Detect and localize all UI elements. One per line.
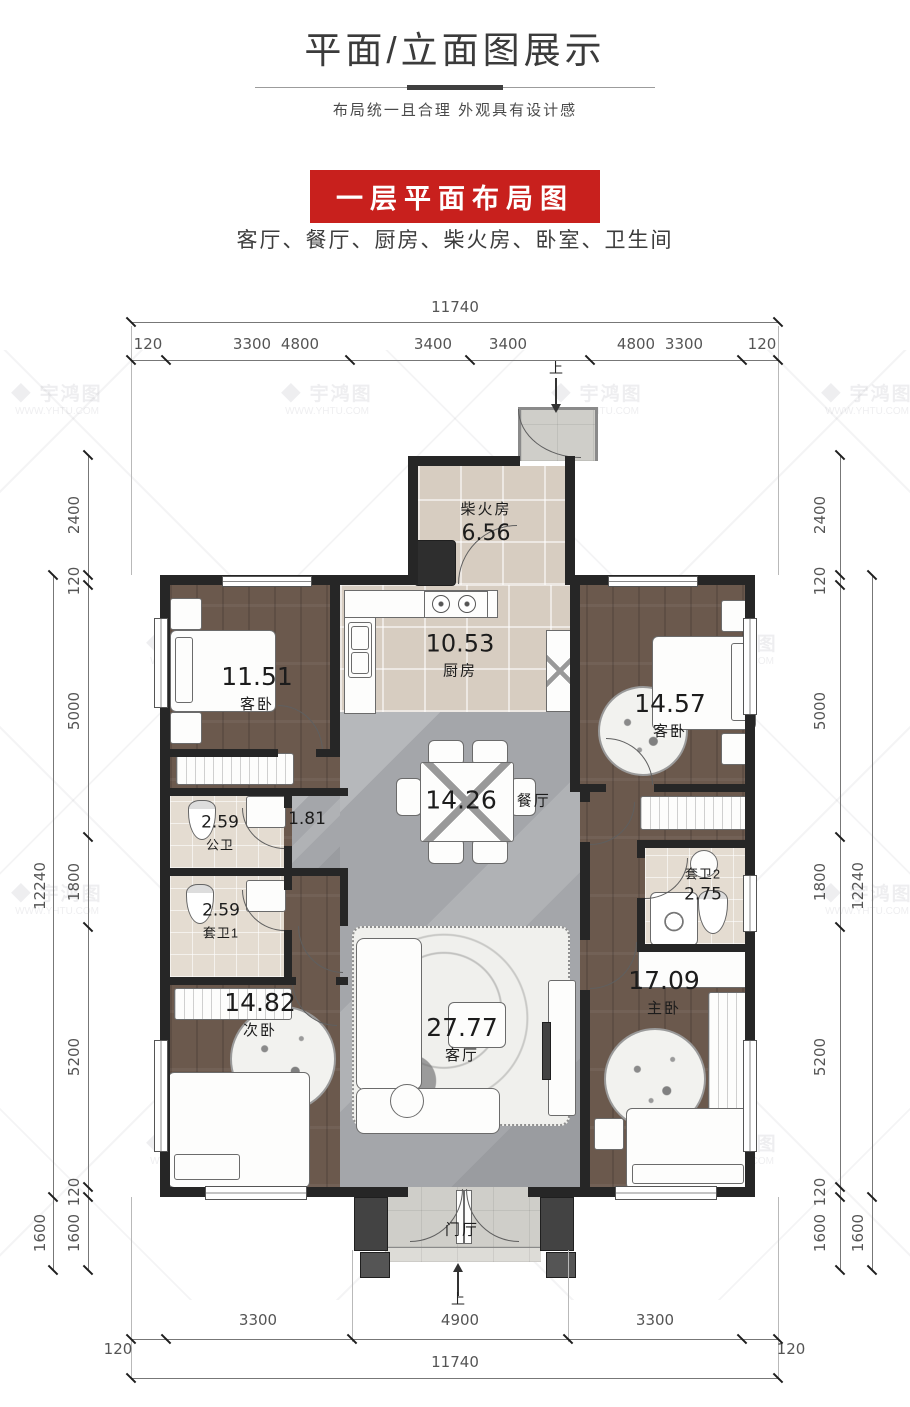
watermark-url: WWW.YHTU.COM: [281, 406, 372, 417]
arrow-head: [551, 404, 561, 413]
room-area: 2.59: [202, 901, 240, 921]
window: [608, 576, 698, 587]
window: [743, 618, 757, 715]
watermark-brand: ◆ 宇鸿图: [11, 379, 102, 406]
room-label-second-bedroom: 14.82 次卧: [224, 988, 296, 1040]
dim-label: 5200: [811, 1038, 829, 1076]
room-name: 套卫1: [203, 923, 239, 942]
wardrobe: [176, 753, 294, 785]
firewood-stove: [414, 540, 456, 586]
dim-line-bottom-chain: [131, 1339, 778, 1340]
room-label-suite-bath-1: 2.59 套卫1: [202, 901, 240, 942]
wardrobe: [640, 796, 748, 830]
watermark-url: WWW.YHTU.COM: [821, 406, 910, 417]
room-area: 14.82: [224, 988, 296, 1017]
dim-line-top-total: [131, 322, 778, 323]
dim-label: 3300: [636, 1311, 674, 1329]
room-name: 客卧: [653, 720, 687, 741]
room-label-guest-bedroom-right: 14.57 客卧: [634, 689, 706, 741]
pillow: [174, 1154, 240, 1180]
dim-label: 1600: [811, 1214, 829, 1252]
wall: [580, 990, 590, 1187]
floor-hallway: [292, 796, 340, 868]
wall: [284, 796, 292, 808]
wall: [340, 876, 348, 926]
room-area: 6.56: [462, 521, 511, 546]
room-name: 柴火房: [460, 498, 511, 519]
room-name: 套卫2: [685, 864, 721, 883]
entry-marker-top: 上: [549, 358, 563, 378]
wall: [160, 788, 348, 796]
dim-label: 1600: [849, 1214, 867, 1252]
porch-column: [540, 1197, 574, 1251]
nightstand: [170, 598, 202, 630]
entry-arrow-top: [555, 378, 557, 404]
dim-line-bottom-total: [131, 1378, 778, 1379]
sink-bowl: [351, 626, 369, 650]
wall-firewood-right: [565, 456, 575, 585]
pillow: [175, 637, 193, 703]
dim-label: 1800: [65, 863, 83, 901]
sink-bowl: [351, 652, 369, 674]
wall: [637, 898, 645, 944]
room-area: 17.09: [628, 966, 700, 995]
stove-burner: [432, 595, 450, 613]
dim-guide: [778, 326, 779, 575]
dim-label: 3300: [665, 335, 703, 353]
wall: [160, 868, 348, 876]
dim-label: 11740: [431, 1353, 479, 1371]
room-area: 2.59: [201, 813, 239, 833]
room-label-foyer: 门厅: [445, 1219, 479, 1240]
room-area: 14.57: [634, 689, 706, 718]
dining-chair: [396, 778, 422, 816]
room-area: 14.26: [425, 786, 497, 815]
wall: [637, 944, 755, 952]
dim-label: 2400: [65, 496, 83, 534]
room-label-dining: 14.26 餐厅: [425, 786, 551, 815]
window: [743, 875, 757, 932]
window: [743, 1040, 757, 1152]
dim-label: 120: [811, 1178, 829, 1207]
room-label-hallway: 1.81: [288, 809, 326, 829]
room-name: 客卧: [240, 693, 274, 714]
room-name: 主卧: [647, 997, 681, 1018]
nightstand: [170, 712, 202, 744]
dim-label: 5200: [65, 1038, 83, 1076]
room-name: 次卧: [243, 1019, 277, 1040]
wall: [580, 784, 590, 802]
sofa: [356, 938, 422, 1090]
porch-column-base: [360, 1252, 390, 1278]
watermark: ◆ 宇鸿图WWW.YHTU.COM: [281, 379, 372, 417]
window: [154, 618, 168, 708]
window: [205, 1186, 307, 1200]
dim-label: 3400: [414, 335, 452, 353]
dim-label: 120: [134, 335, 163, 353]
dim-label: 5000: [811, 692, 829, 730]
wall: [160, 749, 278, 757]
watermark-brand: ◆ 宇鸿图: [821, 379, 910, 406]
watermark-brand: ◆ 宇鸿图: [551, 379, 642, 406]
dim-line-left-outer: [53, 575, 54, 1270]
room-area: 11.51: [221, 662, 293, 691]
dim-label: 3400: [489, 335, 527, 353]
window: [615, 1186, 717, 1200]
window: [222, 576, 312, 587]
dim-label: 120: [811, 567, 829, 596]
watermark: ◆ 宇鸿图WWW.YHTU.COM: [821, 379, 910, 417]
dim-label: 4900: [441, 1311, 479, 1329]
window: [154, 1040, 168, 1152]
dim-label: 12240: [31, 862, 49, 910]
room-label-firewood: 柴火房 6.56: [460, 498, 511, 546]
dim-label: 120: [65, 567, 83, 596]
wall: [637, 848, 645, 858]
watermark-url: WWW.YHTU.COM: [11, 406, 102, 417]
room-area: 10.53: [426, 630, 495, 658]
room-label-living: 27.77 客厅: [426, 1013, 498, 1065]
porch-column: [354, 1197, 388, 1251]
dim-label: 2400: [811, 496, 829, 534]
room-area: 2.75: [684, 885, 722, 905]
pillow: [632, 1164, 744, 1184]
room-name: 餐厅: [517, 790, 551, 811]
dim-label: 120: [748, 335, 777, 353]
room-label-public-bath: 2.59 公卫: [201, 813, 239, 854]
dim-guide: [352, 1250, 353, 1342]
sofa: [356, 1088, 500, 1134]
dim-label: 11740: [431, 298, 479, 316]
stove-burner: [458, 595, 476, 613]
dim-guide: [131, 326, 132, 575]
dim-guide: [568, 1250, 569, 1342]
page: 平面/立面图展示 布局统一且合理 外观具有设计感 一层平面布局图 客厅、餐厅、厨…: [0, 0, 910, 1407]
room-area: 27.77: [426, 1013, 498, 1042]
room-label-suite-bath-2: 套卫2 2.75: [684, 864, 722, 905]
wall: [654, 784, 755, 792]
wall: [330, 575, 340, 757]
room-label-master-bedroom: 17.09 主卧: [628, 966, 700, 1018]
room-name: 厨房: [443, 660, 477, 681]
dim-label: 4800: [281, 335, 319, 353]
dim-line-right-outer: [872, 575, 873, 1270]
wall: [284, 930, 292, 977]
tv-screen: [542, 1022, 551, 1080]
wall: [580, 842, 590, 940]
dim-label: 4800: [617, 335, 655, 353]
dim-label: 3300: [239, 1311, 277, 1329]
wall: [160, 977, 296, 985]
nightstand: [594, 1118, 624, 1150]
dim-label: 3300: [233, 335, 271, 353]
entry-marker-bottom: 上: [451, 1289, 465, 1309]
wall: [637, 840, 755, 848]
dim-label: 1600: [31, 1214, 49, 1252]
dim-label: 120: [104, 1340, 133, 1358]
room-name: 门厅: [445, 1219, 479, 1240]
watermark: ◆ 宇鸿图WWW.YHTU.COM: [11, 379, 102, 417]
dim-label: 1800: [811, 863, 829, 901]
watermark-brand: ◆ 宇鸿图: [281, 379, 372, 406]
room-label-kitchen: 10.53 厨房: [426, 630, 495, 681]
room-area: 1.81: [288, 809, 326, 829]
dim-line-top-chain: [131, 360, 778, 361]
dim-label: 5000: [65, 692, 83, 730]
floor-plan: 柴火房 6.56 10.53 厨房 11.51 客卧 14.57 客卧 14.2…: [0, 0, 910, 1407]
wall: [316, 749, 340, 757]
wall: [284, 876, 292, 890]
dim-label: 120: [65, 1178, 83, 1207]
arrow-head: [453, 1263, 463, 1272]
room-name: 客厅: [445, 1044, 479, 1065]
room-name: 公卫: [206, 835, 234, 854]
pouf: [390, 1084, 424, 1118]
wall-firewood-left: [408, 456, 418, 585]
dim-label: 12240: [849, 862, 867, 910]
porch-column-base: [546, 1252, 576, 1278]
foyer-step: [385, 1247, 541, 1262]
tv-console: [548, 980, 576, 1116]
wall: [284, 846, 292, 868]
wall: [570, 575, 580, 792]
wall: [336, 977, 348, 985]
dim-label: 1600: [65, 1214, 83, 1252]
wall-firewood-top: [408, 456, 520, 466]
room-label-guest-bedroom-left: 11.51 客卧: [221, 662, 293, 714]
